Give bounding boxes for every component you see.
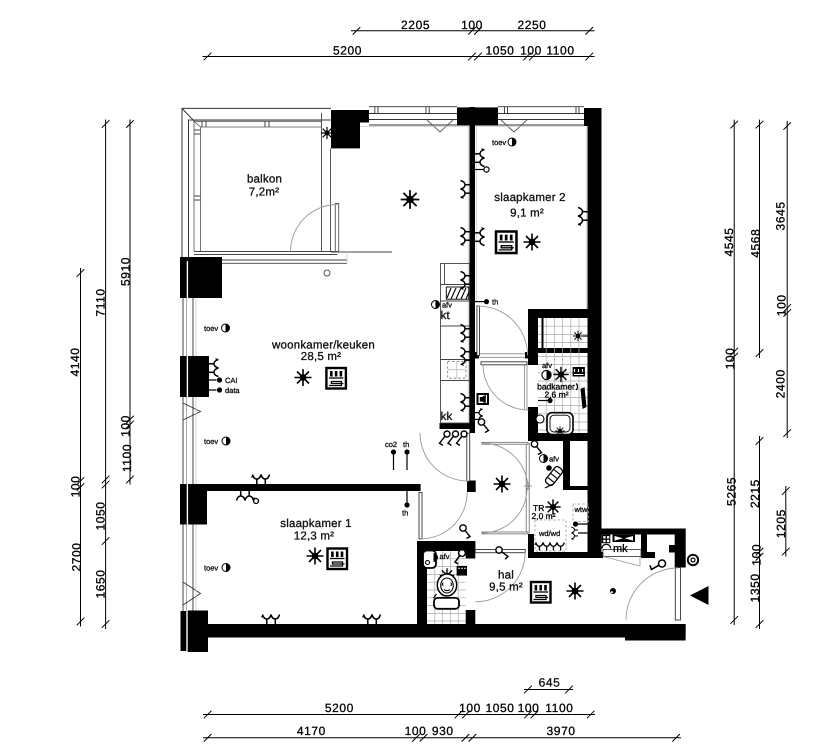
svg-text:CAI: CAI bbox=[225, 376, 238, 385]
svg-text:5200: 5200 bbox=[333, 44, 362, 58]
svg-text:co2: co2 bbox=[385, 440, 397, 449]
svg-text:9,5 m²: 9,5 m² bbox=[489, 582, 523, 594]
svg-text:3645: 3645 bbox=[774, 201, 788, 230]
svg-text:1100: 1100 bbox=[546, 44, 574, 58]
svg-text:toev: toev bbox=[204, 437, 218, 446]
svg-text:100: 100 bbox=[750, 544, 764, 566]
svg-text:2205: 2205 bbox=[401, 18, 430, 32]
svg-text:2215: 2215 bbox=[748, 479, 762, 508]
svg-text:100: 100 bbox=[520, 44, 542, 58]
svg-text:3970: 3970 bbox=[547, 724, 576, 738]
svg-text:wtw: wtw bbox=[574, 505, 589, 514]
svg-text:7,2m²: 7,2m² bbox=[249, 187, 279, 199]
svg-text:930: 930 bbox=[432, 724, 454, 738]
svg-text:1050: 1050 bbox=[485, 701, 514, 715]
svg-text:4545: 4545 bbox=[722, 227, 736, 256]
svg-text:th: th bbox=[492, 298, 498, 307]
svg-text:1100: 1100 bbox=[120, 444, 134, 472]
svg-text:wd/wd: wd/wd bbox=[538, 529, 560, 538]
svg-text:100: 100 bbox=[459, 701, 481, 715]
svg-text:1205: 1205 bbox=[774, 509, 788, 538]
svg-text:100: 100 bbox=[68, 476, 82, 498]
svg-text:afv: afv bbox=[442, 301, 452, 310]
svg-text:645: 645 bbox=[539, 676, 561, 690]
svg-text:afv: afv bbox=[542, 361, 552, 370]
svg-text:1050: 1050 bbox=[485, 44, 514, 58]
svg-text:kt: kt bbox=[441, 310, 451, 322]
svg-text:5200: 5200 bbox=[325, 701, 354, 715]
svg-text:4568: 4568 bbox=[748, 229, 762, 258]
svg-text:2,6 m²: 2,6 m² bbox=[544, 390, 568, 400]
svg-text:hal: hal bbox=[498, 570, 514, 582]
svg-text:toev: toev bbox=[204, 324, 218, 333]
svg-text:5910: 5910 bbox=[119, 257, 133, 286]
svg-text:data: data bbox=[225, 386, 240, 395]
svg-text:100: 100 bbox=[118, 415, 132, 437]
svg-text:100: 100 bbox=[518, 701, 540, 715]
svg-text:2,0 m²: 2,0 m² bbox=[532, 511, 556, 521]
svg-text:toev: toev bbox=[204, 564, 218, 573]
svg-text:slaapkamer 1: slaapkamer 1 bbox=[280, 518, 351, 530]
svg-text:th: th bbox=[402, 509, 408, 518]
svg-text:1050: 1050 bbox=[94, 501, 108, 530]
svg-text:12,3 m²: 12,3 m² bbox=[294, 531, 334, 543]
svg-text:woonkamer/keuken: woonkamer/keuken bbox=[271, 340, 375, 352]
svg-text:1350: 1350 bbox=[748, 573, 762, 602]
svg-text:100: 100 bbox=[461, 18, 483, 32]
svg-text:afv: afv bbox=[549, 455, 559, 464]
svg-text:4140: 4140 bbox=[68, 347, 82, 376]
svg-text:28,5 m²: 28,5 m² bbox=[301, 351, 341, 363]
svg-text:2400: 2400 bbox=[774, 369, 788, 398]
svg-text:100: 100 bbox=[723, 348, 737, 370]
svg-text:100: 100 bbox=[775, 294, 789, 316]
svg-text:kk: kk bbox=[441, 411, 453, 423]
svg-text:afv: afv bbox=[440, 552, 450, 561]
svg-text:2700: 2700 bbox=[69, 542, 83, 571]
svg-text:100: 100 bbox=[405, 724, 427, 738]
svg-text:4170: 4170 bbox=[297, 724, 326, 738]
svg-text:5265: 5265 bbox=[725, 477, 739, 506]
svg-text:slaapkamer 2: slaapkamer 2 bbox=[494, 192, 565, 204]
svg-text:toev: toev bbox=[492, 138, 506, 147]
svg-text:9,1 m²: 9,1 m² bbox=[510, 208, 544, 220]
svg-text:1650: 1650 bbox=[94, 569, 108, 598]
svg-text:mk: mk bbox=[613, 543, 628, 555]
svg-text:2250: 2250 bbox=[517, 18, 546, 32]
svg-text:balkon: balkon bbox=[247, 174, 282, 186]
svg-text:1100: 1100 bbox=[545, 701, 573, 715]
svg-text:7110: 7110 bbox=[94, 288, 108, 316]
svg-text:th: th bbox=[403, 440, 409, 449]
